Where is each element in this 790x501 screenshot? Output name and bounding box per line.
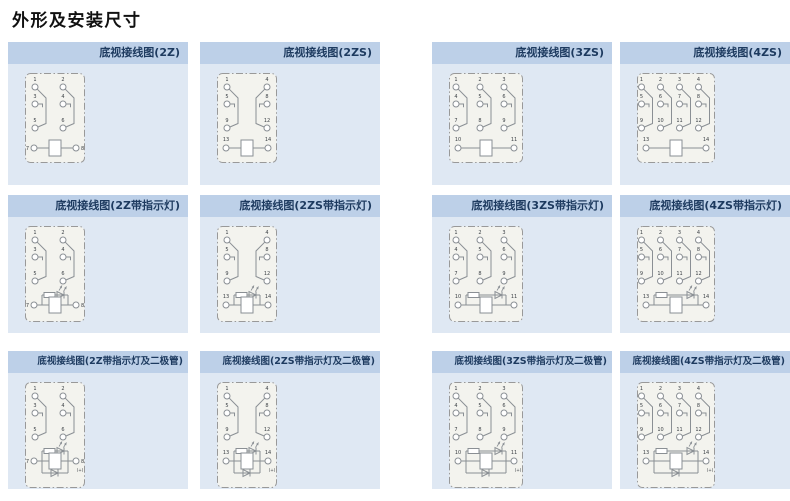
svg-text:10: 10	[657, 427, 663, 433]
svg-text:11: 11	[676, 271, 682, 277]
svg-text:6: 6	[659, 403, 662, 409]
svg-text:6: 6	[61, 427, 64, 433]
svg-text:1: 1	[454, 230, 457, 236]
svg-text:5: 5	[225, 403, 228, 409]
panel-title: 底视接线图(4ZS带指示灯)	[620, 195, 790, 217]
panel-title: 底视接线图(3ZS带指示灯及二极管)	[432, 351, 612, 373]
svg-text:5: 5	[225, 247, 228, 253]
svg-text:2: 2	[659, 386, 662, 392]
svg-text:1: 1	[454, 77, 457, 83]
svg-text:5: 5	[33, 271, 36, 277]
svg-text:4: 4	[265, 77, 268, 83]
svg-text:11: 11	[511, 137, 517, 143]
svg-text:13: 13	[223, 137, 229, 143]
svg-text:4: 4	[61, 247, 64, 253]
svg-text:2: 2	[478, 77, 481, 83]
svg-text:4: 4	[454, 94, 457, 100]
svg-text:1: 1	[225, 386, 228, 392]
panel-3zs: 底视接线图(3ZS) 1472583691011	[432, 42, 612, 185]
svg-text:2: 2	[659, 230, 662, 236]
svg-text:12: 12	[695, 427, 701, 433]
svg-text:2: 2	[478, 230, 481, 236]
svg-text:9: 9	[225, 118, 228, 124]
svg-text:6: 6	[61, 271, 64, 277]
svg-text:7: 7	[26, 303, 29, 309]
svg-text:8: 8	[697, 403, 700, 409]
panel-title: 底视接线图(2ZS)	[200, 42, 380, 64]
svg-text:3: 3	[33, 247, 36, 253]
svg-text:12: 12	[264, 427, 270, 433]
svg-text:8: 8	[265, 94, 268, 100]
svg-text:1: 1	[454, 386, 457, 392]
panel-2zs: 底视接线图(2ZS) 15948121314	[200, 42, 380, 185]
svg-text:14: 14	[265, 450, 271, 456]
svg-text:8: 8	[265, 403, 268, 409]
svg-text:9: 9	[640, 118, 643, 124]
svg-text:10: 10	[455, 450, 461, 456]
wiring-schematic-3zs-ind: 1472583691011	[448, 225, 524, 323]
svg-text:12: 12	[264, 118, 270, 124]
svg-text:2: 2	[61, 77, 64, 83]
svg-text:(+): (+)	[77, 468, 84, 473]
svg-text:10: 10	[657, 271, 663, 277]
wiring-schematic-4zs: 1592610371148121314	[636, 72, 716, 164]
svg-text:4: 4	[61, 94, 64, 100]
svg-text:3: 3	[33, 94, 36, 100]
svg-text:5: 5	[640, 247, 643, 253]
svg-text:4: 4	[454, 247, 457, 253]
svg-text:6: 6	[659, 94, 662, 100]
panel-title: 底视接线图(4ZS带指示灯及二极管)	[620, 351, 790, 373]
svg-text:11: 11	[511, 450, 517, 456]
svg-text:6: 6	[659, 247, 662, 253]
svg-text:7: 7	[26, 459, 29, 465]
svg-text:4: 4	[265, 230, 268, 236]
wiring-schematic-2zs-ind-diode: 15948121314(+)	[216, 381, 278, 489]
svg-text:6: 6	[502, 403, 505, 409]
panel-4zs: 底视接线图(4ZS) 1592610371148121314	[620, 42, 790, 185]
svg-text:8: 8	[478, 118, 481, 124]
svg-text:5: 5	[478, 403, 481, 409]
svg-text:2: 2	[478, 386, 481, 392]
svg-text:3: 3	[678, 77, 681, 83]
svg-text:8: 8	[81, 146, 84, 152]
svg-text:(+): (+)	[269, 468, 276, 473]
svg-text:(+): (+)	[515, 468, 522, 473]
wiring-schematic-4zs-ind-diode: 1592610371148121314(+)	[636, 381, 716, 489]
panel-title: 底视接线图(4ZS)	[620, 42, 790, 64]
svg-text:5: 5	[478, 247, 481, 253]
svg-text:14: 14	[703, 294, 709, 300]
svg-text:8: 8	[697, 94, 700, 100]
svg-text:5: 5	[33, 427, 36, 433]
svg-text:6: 6	[502, 247, 505, 253]
svg-text:2: 2	[659, 77, 662, 83]
svg-text:9: 9	[640, 427, 643, 433]
panel-3zs-ind: 底视接线图(3ZS带指示灯) 1472583691011	[432, 195, 612, 333]
svg-text:5: 5	[478, 94, 481, 100]
svg-text:14: 14	[265, 294, 271, 300]
svg-text:5: 5	[33, 118, 36, 124]
panel-4zs-ind: 底视接线图(4ZS带指示灯) 1592610371148121314	[620, 195, 790, 333]
svg-text:9: 9	[225, 271, 228, 277]
svg-text:7: 7	[454, 271, 457, 277]
wiring-schematic-2zs: 15948121314	[216, 72, 278, 164]
svg-text:12: 12	[695, 271, 701, 277]
svg-text:(+): (+)	[707, 468, 714, 473]
svg-text:4: 4	[697, 230, 700, 236]
svg-text:2: 2	[61, 230, 64, 236]
page-title: 外形及安装尺寸	[12, 6, 142, 31]
wiring-schematic-2z-ind: 13524678	[24, 225, 86, 323]
panel-2z-ind-diode: 底视接线图(2Z带指示灯及二极管) 13524678(+)	[8, 351, 188, 489]
svg-text:9: 9	[502, 271, 505, 277]
svg-text:7: 7	[454, 427, 457, 433]
svg-text:8: 8	[81, 303, 84, 309]
svg-text:13: 13	[643, 450, 649, 456]
panel-2zs-ind: 底视接线图(2ZS带指示灯) 15948121314	[200, 195, 380, 333]
panel-3zs-ind-diode: 底视接线图(3ZS带指示灯及二极管) 1472583691011(+)	[432, 351, 612, 489]
svg-text:3: 3	[678, 230, 681, 236]
svg-text:6: 6	[61, 118, 64, 124]
svg-text:12: 12	[264, 271, 270, 277]
svg-text:5: 5	[640, 94, 643, 100]
svg-text:1: 1	[225, 77, 228, 83]
panel-title: 底视接线图(2ZS带指示灯)	[200, 195, 380, 217]
panel-title: 底视接线图(2Z带指示灯)	[8, 195, 188, 217]
svg-text:11: 11	[676, 118, 682, 124]
svg-text:9: 9	[225, 427, 228, 433]
panel-2z: 底视接线图(2Z) 13524678	[8, 42, 188, 185]
svg-text:7: 7	[678, 247, 681, 253]
svg-text:3: 3	[678, 386, 681, 392]
panel-2zs-ind-diode: 底视接线图(2ZS带指示灯及二极管) 15948121314(+)	[200, 351, 380, 489]
wiring-schematic-4zs-ind: 1592610371148121314	[636, 225, 716, 323]
svg-text:13: 13	[643, 137, 649, 143]
svg-text:10: 10	[657, 118, 663, 124]
svg-text:1: 1	[33, 386, 36, 392]
panel-title: 底视接线图(2Z带指示灯及二极管)	[8, 351, 188, 373]
panel-title: 底视接线图(3ZS带指示灯)	[432, 195, 612, 217]
wiring-schematic-3zs-ind-diode: 1472583691011(+)	[448, 381, 524, 489]
svg-text:8: 8	[81, 459, 84, 465]
svg-text:9: 9	[502, 427, 505, 433]
panel-title: 底视接线图(2ZS带指示灯及二极管)	[200, 351, 380, 373]
svg-text:8: 8	[478, 427, 481, 433]
svg-text:9: 9	[640, 271, 643, 277]
svg-text:2: 2	[61, 386, 64, 392]
panel-4zs-ind-diode: 底视接线图(4ZS带指示灯及二极管) 1592610371148121314(+…	[620, 351, 790, 489]
panel-title: 底视接线图(2Z)	[8, 42, 188, 64]
svg-text:13: 13	[223, 450, 229, 456]
svg-text:14: 14	[703, 450, 709, 456]
wiring-schematic-3zs: 1472583691011	[448, 72, 524, 164]
svg-text:7: 7	[26, 146, 29, 152]
svg-text:4: 4	[454, 403, 457, 409]
svg-text:6: 6	[502, 94, 505, 100]
svg-text:4: 4	[697, 386, 700, 392]
svg-text:1: 1	[33, 230, 36, 236]
svg-text:8: 8	[697, 247, 700, 253]
svg-text:11: 11	[511, 294, 517, 300]
svg-text:9: 9	[502, 118, 505, 124]
svg-text:4: 4	[61, 403, 64, 409]
svg-text:5: 5	[640, 403, 643, 409]
svg-text:12: 12	[695, 118, 701, 124]
svg-text:3: 3	[502, 386, 505, 392]
svg-text:7: 7	[454, 118, 457, 124]
svg-text:11: 11	[676, 427, 682, 433]
svg-text:1: 1	[640, 77, 643, 83]
svg-text:1: 1	[640, 230, 643, 236]
datasheet-page: 外形及安装尺寸 底视接线图(2Z) 13524678 底视接线图(2ZS) 15…	[0, 0, 790, 501]
panel-title: 底视接线图(3ZS)	[432, 42, 612, 64]
wiring-schematic-2z: 13524678	[24, 72, 86, 164]
svg-text:1: 1	[640, 386, 643, 392]
svg-text:4: 4	[265, 386, 268, 392]
svg-text:1: 1	[225, 230, 228, 236]
svg-text:3: 3	[502, 230, 505, 236]
svg-text:7: 7	[678, 403, 681, 409]
svg-text:4: 4	[697, 77, 700, 83]
svg-text:13: 13	[223, 294, 229, 300]
svg-text:3: 3	[33, 403, 36, 409]
svg-text:14: 14	[265, 137, 271, 143]
svg-text:8: 8	[265, 247, 268, 253]
svg-text:13: 13	[643, 294, 649, 300]
panel-2z-ind: 底视接线图(2Z带指示灯) 13524678	[8, 195, 188, 333]
svg-text:10: 10	[455, 137, 461, 143]
wiring-schematic-2zs-ind: 15948121314	[216, 225, 278, 323]
svg-text:3: 3	[502, 77, 505, 83]
svg-text:5: 5	[225, 94, 228, 100]
svg-text:7: 7	[678, 94, 681, 100]
svg-text:8: 8	[478, 271, 481, 277]
svg-text:1: 1	[33, 77, 36, 83]
wiring-schematic-2z-ind-diode: 13524678(+)	[24, 381, 86, 489]
svg-text:14: 14	[703, 137, 709, 143]
svg-text:10: 10	[455, 294, 461, 300]
